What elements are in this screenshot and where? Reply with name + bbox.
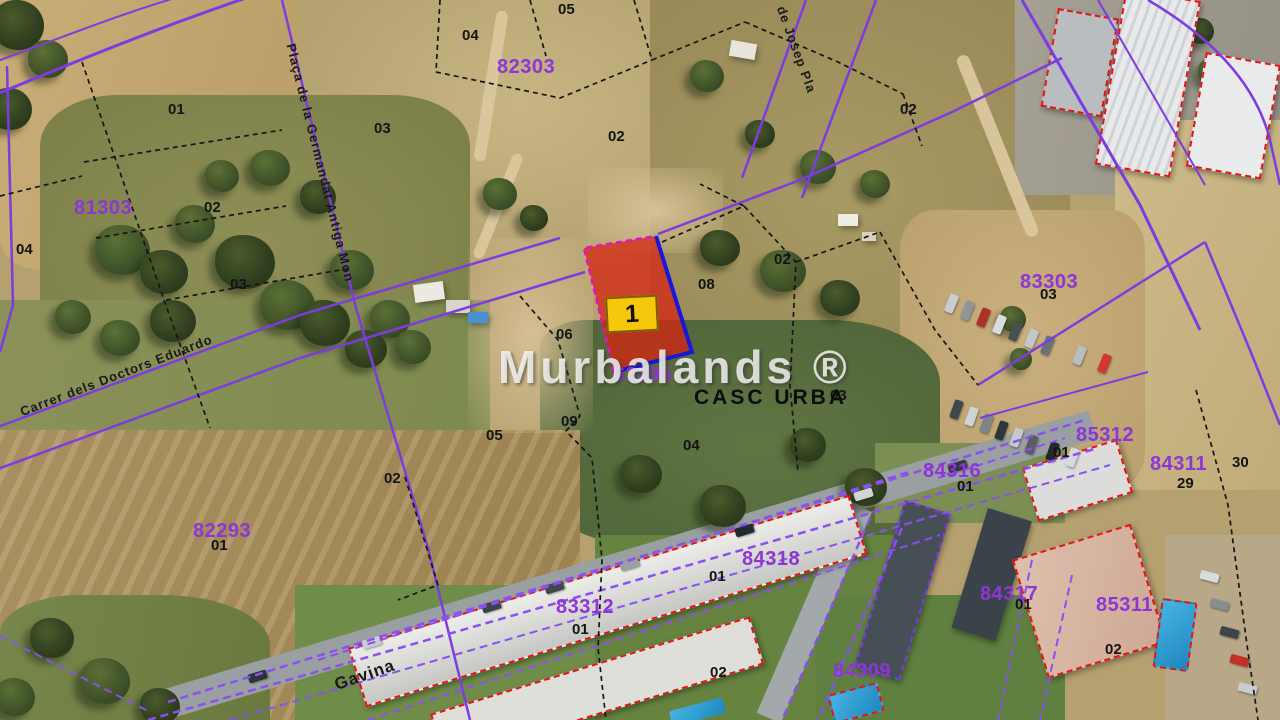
subparcel-number: 05	[558, 1, 575, 18]
parcel-code-85312: 85312	[1076, 424, 1134, 447]
subparcel-number: 03	[374, 120, 391, 137]
subparcel-number: 02	[1105, 641, 1122, 658]
subparcel-number: 02	[384, 470, 401, 487]
subparcel-number: 04	[683, 437, 700, 454]
subparcel-number: 02	[900, 101, 917, 118]
subparcel-number: 02	[710, 664, 727, 681]
subparcel-number: 01	[1053, 444, 1070, 461]
watermark: Murbalands ®	[498, 340, 851, 394]
subparcel-number: 01	[957, 478, 974, 495]
subparcel-number: 04	[462, 27, 479, 44]
subparcel-number: 01	[168, 101, 185, 118]
parcel-code-84309: 84309	[833, 660, 891, 683]
parcel-code-84311: 84311	[1150, 453, 1207, 476]
subparcel-number: 03	[230, 276, 247, 293]
subparcel-number: 04	[16, 241, 33, 258]
subparcel-number: 05	[486, 427, 503, 444]
subparcel-number: 08	[698, 276, 715, 293]
subparcel-number: 29	[1177, 475, 1194, 492]
parcel-code-85311: 85311	[1096, 594, 1153, 617]
subparcel-number: 01	[709, 568, 726, 585]
subparcel-number: 09	[561, 413, 578, 430]
subparcel-number: 01	[1015, 596, 1032, 613]
subparcel-number: 02	[204, 199, 221, 216]
cadastral-map: 81303 82303 82293 83303 85312 84311 8431…	[0, 0, 1280, 720]
subparcel-number: 30	[1232, 454, 1249, 471]
subparcel-number: 02	[608, 128, 625, 145]
subparcel-number: 03	[1040, 286, 1057, 303]
subparcel-number: 01	[572, 621, 589, 638]
parcel-code-84318: 84318	[742, 548, 800, 571]
selected-parcel-badge[interactable]: 1	[605, 295, 659, 334]
subparcel-number: 01	[211, 537, 228, 554]
parcel-code-81303: 81303	[74, 197, 132, 220]
parcel-code-83312: 83312	[556, 596, 614, 619]
parcel-code-82303: 82303	[497, 56, 555, 79]
selected-parcel-number: 1	[624, 299, 639, 329]
subparcel-number: 02	[774, 251, 791, 268]
